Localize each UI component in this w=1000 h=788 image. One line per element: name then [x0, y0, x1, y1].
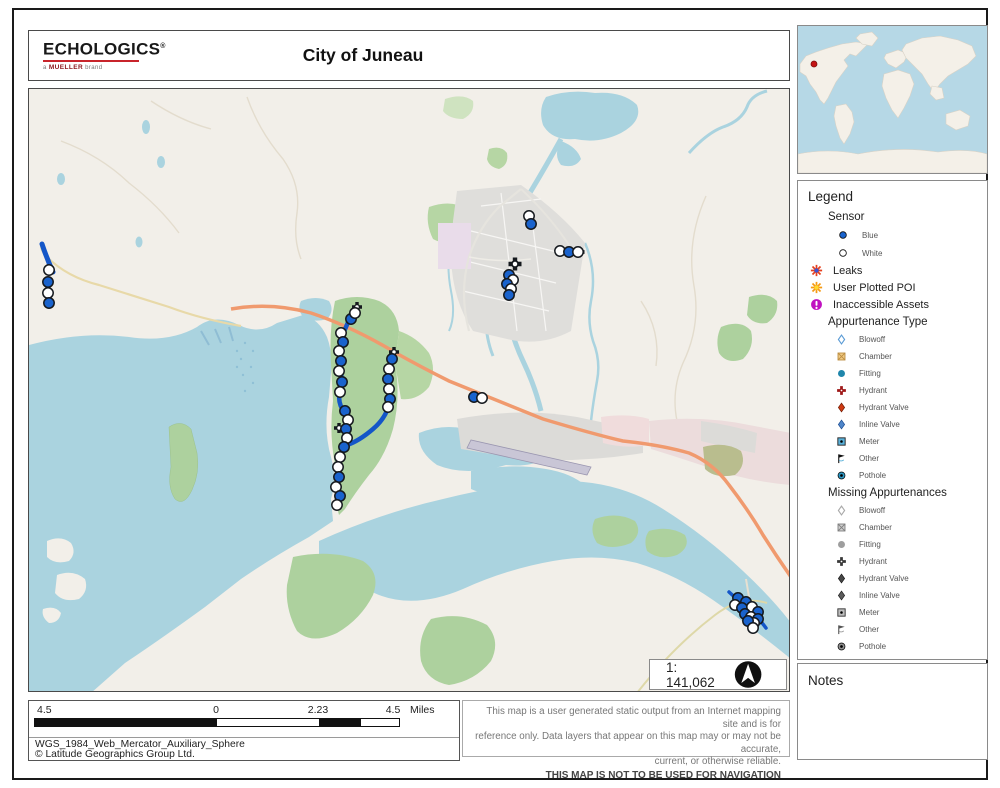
sensor-white-marker	[333, 462, 343, 472]
legend-item-other: Other	[836, 450, 987, 467]
legend-appurtenance-heading: Appurtenance Type	[828, 316, 987, 328]
scale-bar	[34, 718, 400, 727]
sensor_blue-icon	[838, 230, 848, 240]
sensor-white-marker	[383, 402, 393, 412]
legend-item-label: Chamber	[859, 352, 892, 361]
sensor-white-marker	[43, 288, 53, 298]
copyright-text: © Latitude Geographics Group Ltd.	[35, 749, 195, 760]
legend-item-blue: Blue	[838, 226, 987, 244]
legend-missing-heading: Missing Appurtenances	[828, 487, 987, 499]
legend-item-pothole: Pothole	[836, 638, 987, 655]
sensor-blue-marker	[504, 290, 514, 300]
sensor-white-marker	[44, 265, 54, 275]
legend-item-label: Meter	[859, 437, 879, 446]
legend-item-fitting: Fitting	[836, 536, 987, 553]
inaccess-icon	[810, 298, 823, 311]
disclaimer: This map is a user generated static outp…	[462, 700, 790, 757]
chamber-icon	[836, 522, 847, 533]
scalebar-segment	[217, 719, 319, 726]
scalebar-unit: Miles	[410, 704, 435, 716]
sensor-blue-marker	[43, 277, 53, 287]
legend-item-hydrant: Hydrant	[836, 553, 987, 570]
sensor-white-marker	[384, 364, 394, 374]
meter-icon	[836, 436, 847, 447]
legend-item-label: Fitting	[859, 540, 881, 549]
scalebar-panel: 4.5 0 2.23 4.5 Miles WGS_1984_Web_Mercat…	[28, 700, 460, 761]
sensor-blue-marker	[44, 298, 54, 308]
other-icon	[836, 453, 847, 464]
sensor_white-icon	[838, 248, 848, 258]
sensor-white-marker	[335, 387, 345, 397]
legend-item-meter: Meter	[836, 433, 987, 450]
leaks-icon	[810, 264, 823, 277]
logo-text: ECHOLOGICS®	[43, 38, 166, 58]
header: ECHOLOGICS® a MUELLER brand City of June…	[28, 30, 790, 81]
sensor-white-marker	[332, 500, 342, 510]
legend-item-fitting: Fitting	[836, 365, 987, 382]
brand-line: a MUELLER brand	[43, 64, 166, 71]
pothole-icon	[836, 641, 847, 652]
scalebar-segment	[319, 719, 361, 726]
overview-inset-map	[797, 25, 988, 174]
scalebar-label-right: 4.5	[386, 704, 401, 716]
sensor-white-marker	[384, 384, 394, 394]
legend-item-label: Inaccessible Assets	[833, 299, 929, 311]
legend-item-chamber: Chamber	[836, 348, 987, 365]
legend-item-label: Pothole	[859, 642, 886, 651]
sensor-blue-marker	[387, 354, 397, 364]
sensor-blue-marker	[526, 219, 536, 229]
echologics-logo: ECHOLOGICS® a MUELLER brand	[43, 38, 166, 71]
legend-item-label: Fitting	[859, 369, 881, 378]
fitting-icon	[836, 539, 847, 550]
hydrantvalve-icon	[836, 402, 847, 413]
notes-title: Notes	[808, 673, 987, 688]
scalebar-label-zero: 0	[213, 704, 219, 716]
legend-item-label: Hydrant	[859, 557, 887, 566]
north-arrow-icon	[715, 660, 781, 689]
logo-underline	[43, 60, 139, 62]
chamber-icon	[836, 351, 847, 362]
fitting-icon	[836, 368, 847, 379]
legend-sensor-heading: Sensor	[828, 211, 987, 223]
sensor-blue-marker	[337, 377, 347, 387]
legend-item-inaccessible-assets: Inaccessible Assets	[810, 296, 987, 313]
legend-item-label: Pothole	[859, 471, 886, 480]
legend-item-hydrant-valve: Hydrant Valve	[836, 570, 987, 587]
disclaimer-line: reference only. Data layers that appear …	[471, 731, 781, 756]
legend-item-label: Hydrant	[859, 386, 887, 395]
legend-item-label: Other	[859, 625, 879, 634]
sensor-white-marker	[335, 452, 345, 462]
blowoff-icon	[836, 505, 847, 516]
sensor-blue-marker	[383, 374, 393, 384]
legend-item-pothole: Pothole	[836, 467, 987, 484]
notes-panel: Notes	[797, 663, 988, 760]
other-icon	[836, 624, 847, 635]
sensor-white-marker	[477, 393, 487, 403]
scale-ratio: 1: 141,062	[666, 660, 715, 690]
main-map: 1: 141,062	[28, 88, 790, 692]
legend-item-label: Leaks	[833, 265, 862, 277]
legend-item-blowoff: Blowoff	[836, 502, 987, 519]
legend-item-label: Hydrant Valve	[859, 574, 909, 583]
sensor-white-marker	[748, 623, 758, 633]
legend-item-label: White	[862, 249, 882, 258]
legend-item-label: Blowoff	[859, 506, 885, 515]
legend-item-hydrant-valve: Hydrant Valve	[836, 399, 987, 416]
disclaimer-warning: THIS MAP IS NOT TO BE USED FOR NAVIGATIO…	[471, 770, 781, 783]
blowoff-icon	[836, 334, 847, 345]
hydrant-icon	[836, 385, 847, 396]
sensor-white-marker	[573, 247, 583, 257]
legend-item-leaks: Leaks	[810, 262, 987, 279]
meter-icon	[836, 607, 847, 618]
legend-item-label: Inline Valve	[859, 591, 900, 600]
map-canvas	[29, 89, 789, 691]
map-scale-box: 1: 141,062	[649, 659, 787, 690]
inlinevalve-icon	[836, 590, 847, 601]
legend-item-inline-valve: Inline Valve	[836, 587, 987, 604]
legend-item-label: Blue	[862, 231, 878, 240]
scalebar-divider	[29, 737, 459, 738]
scalebar-segment	[361, 719, 399, 726]
sensor-white-marker	[350, 308, 360, 318]
poi-icon	[810, 281, 823, 294]
location-marker	[811, 61, 817, 67]
sensor-blue-marker	[339, 442, 349, 452]
sensor-blue-marker	[334, 472, 344, 482]
inlinevalve-icon	[836, 419, 847, 430]
legend-item-label: Blowoff	[859, 335, 885, 344]
pothole-icon	[836, 470, 847, 481]
sensor-blue-marker	[336, 356, 346, 366]
legend-item-label: Meter	[859, 608, 879, 617]
hydrantvalve-icon	[836, 573, 847, 584]
legend-item-white: White	[838, 244, 987, 262]
legend-title: Legend	[808, 189, 987, 204]
legend-item-chamber: Chamber	[836, 519, 987, 536]
legend-item-label: User Plotted POI	[833, 282, 916, 294]
hydrant-icon	[836, 556, 847, 567]
legend-item-meter: Meter	[836, 604, 987, 621]
legend-item-inline-valve: Inline Valve	[836, 416, 987, 433]
legend-item-label: Inline Valve	[859, 420, 900, 429]
sensor-white-marker	[334, 366, 344, 376]
legend-item-label: Chamber	[859, 523, 892, 532]
legend-panel: Legend Sensor BlueWhite LeaksUser Plotte…	[797, 180, 988, 660]
legend-item-label: Hydrant Valve	[859, 403, 909, 412]
disclaimer-line: current, or otherwise reliable.	[471, 756, 781, 769]
legend-item-blowoff: Blowoff	[836, 331, 987, 348]
legend-item-other: Other	[836, 621, 987, 638]
scalebar-segment	[35, 719, 217, 726]
sensor-white-marker	[334, 346, 344, 356]
legend-item-hydrant: Hydrant	[836, 382, 987, 399]
legend-item-user-plotted-poi: User Plotted POI	[810, 279, 987, 296]
scalebar-label-mid: 2.23	[308, 704, 328, 716]
scalebar-label-left: 4.5	[37, 704, 52, 716]
disclaimer-line: This map is a user generated static outp…	[471, 706, 781, 731]
page-title: City of Juneau	[303, 45, 424, 66]
legend-item-label: Other	[859, 454, 879, 463]
